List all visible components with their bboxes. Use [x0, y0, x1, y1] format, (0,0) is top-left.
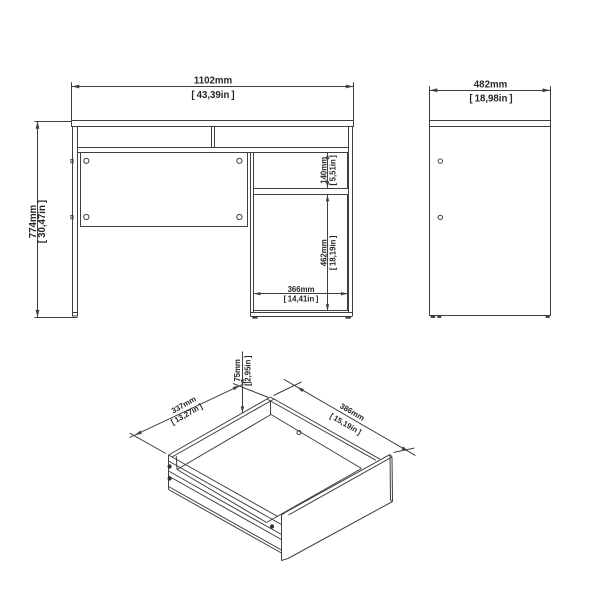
- svg-text:462mm: 462mm: [319, 239, 328, 266]
- svg-text:1102mm: 1102mm: [194, 75, 233, 86]
- svg-text:[30,47in]: [30,47in]: [37, 200, 48, 243]
- svg-text:482mm: 482mm: [474, 80, 508, 91]
- svg-text:[18,19in]: [18,19in]: [329, 235, 338, 270]
- svg-text:[5,51in]: [5,51in]: [329, 155, 338, 186]
- svg-text:[18,98in]: [18,98in]: [469, 94, 512, 105]
- svg-text:366mm: 366mm: [288, 285, 315, 294]
- svg-text:[14,41in]: [14,41in]: [284, 294, 319, 303]
- svg-text:75mm: 75mm: [233, 359, 242, 382]
- svg-text:140mm: 140mm: [319, 157, 328, 184]
- svg-text:[2,95in]: [2,95in]: [243, 355, 252, 386]
- svg-text:[43,39in]: [43,39in]: [191, 90, 234, 101]
